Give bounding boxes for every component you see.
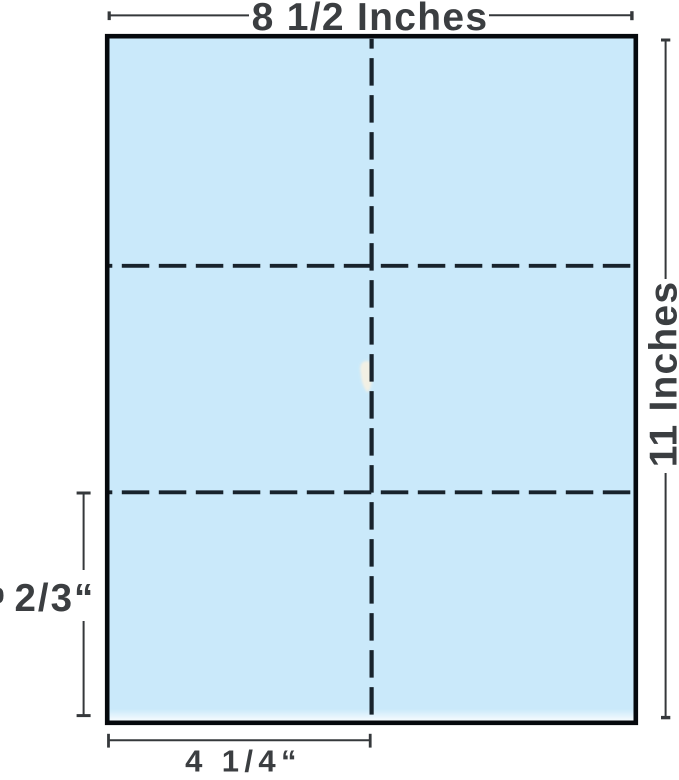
svg-text:8 1/2 Inches: 8 1/2 Inches	[252, 0, 489, 39]
svg-text:2/3“: 2/3“	[15, 577, 96, 620]
svg-text:11 Inches: 11 Inches	[643, 281, 679, 467]
svg-text:4 1/4“: 4 1/4“	[185, 744, 302, 779]
